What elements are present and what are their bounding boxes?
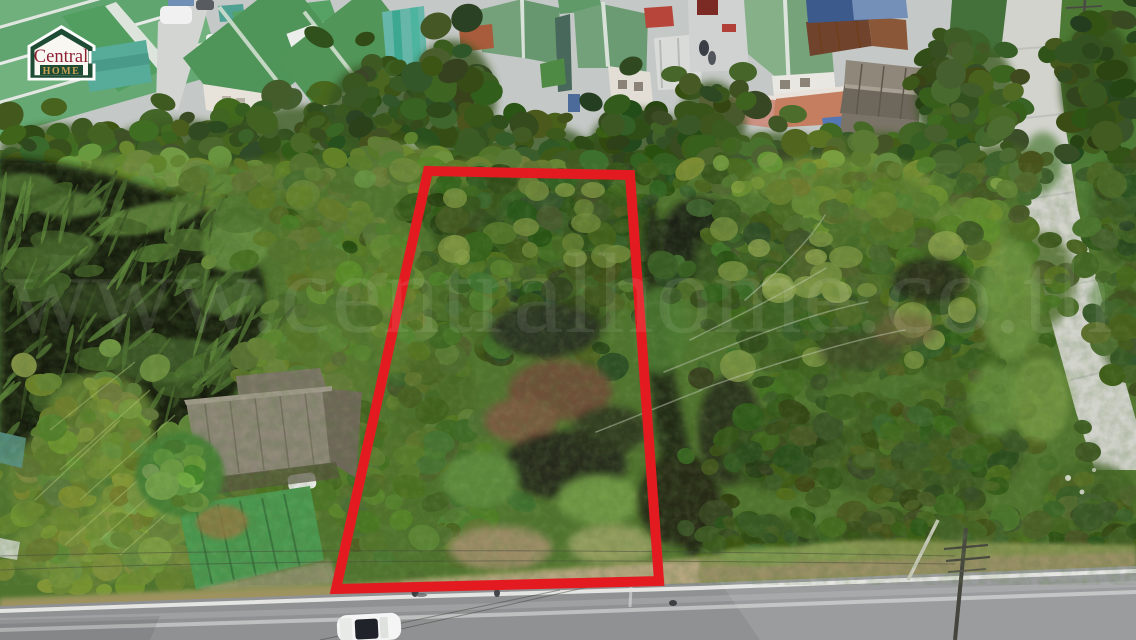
- svg-text:HOME: HOME: [43, 66, 81, 77]
- svg-text:Central: Central: [34, 47, 88, 67]
- svg-text:www.centralhome.co.th: www.centralhome.co.th: [8, 230, 1114, 357]
